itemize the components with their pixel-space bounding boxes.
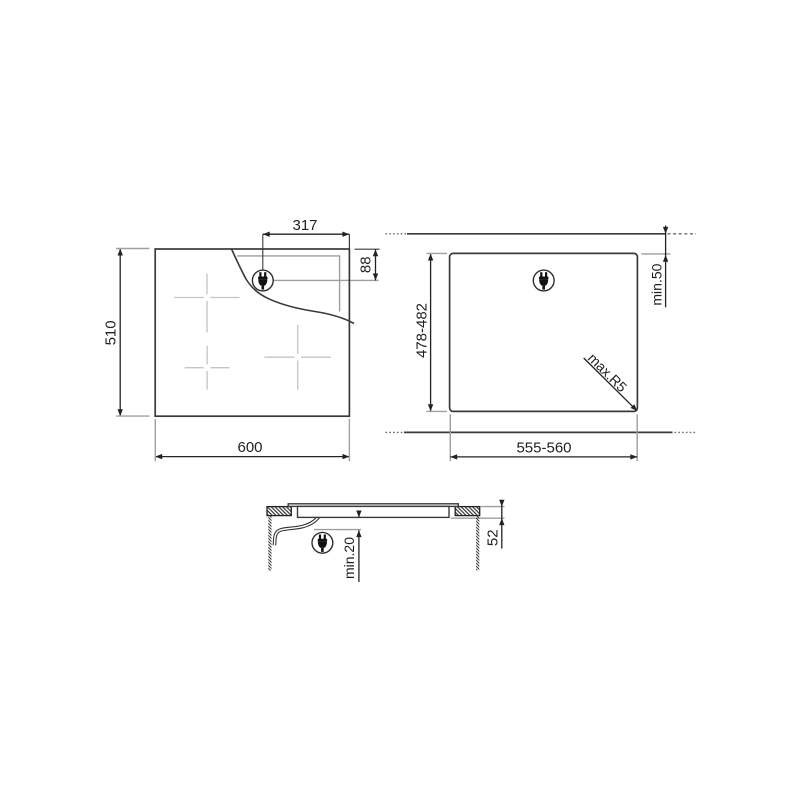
svg-text:min.50: min.50 bbox=[648, 263, 664, 305]
svg-text:min.20: min.20 bbox=[341, 537, 357, 579]
svg-text:88: 88 bbox=[358, 256, 375, 273]
svg-text:600: 600 bbox=[237, 439, 262, 456]
svg-text:317: 317 bbox=[292, 217, 317, 234]
svg-text:510: 510 bbox=[102, 320, 119, 345]
svg-text:52: 52 bbox=[484, 529, 501, 546]
svg-text:478-482: 478-482 bbox=[414, 303, 431, 358]
svg-text:555-560: 555-560 bbox=[516, 439, 571, 456]
